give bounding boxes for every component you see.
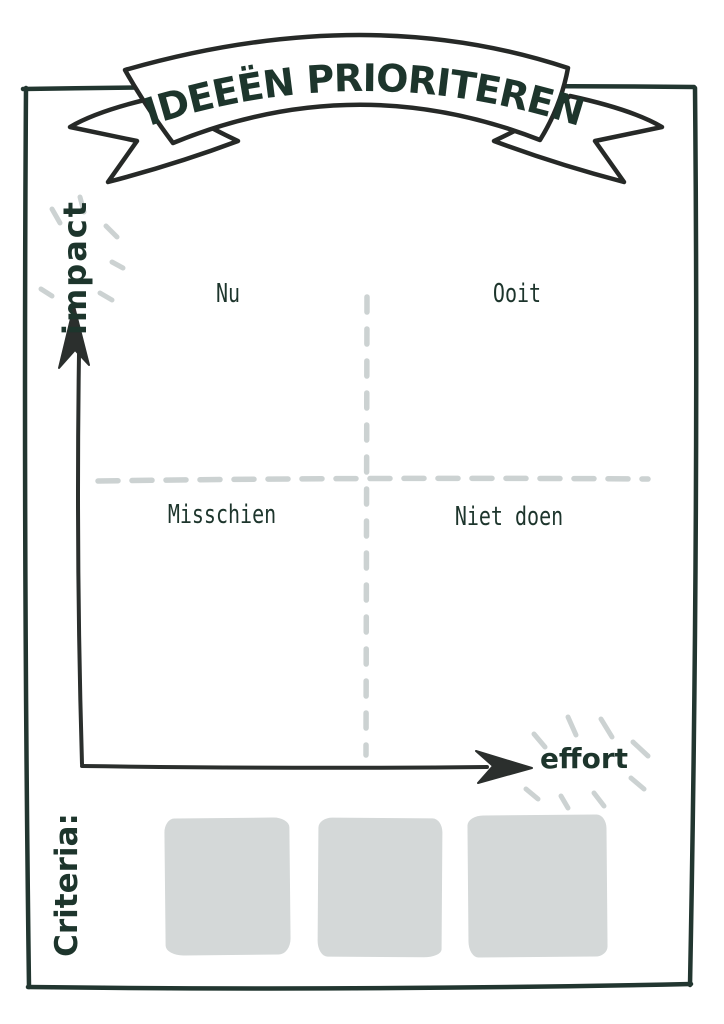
quadrant-divider-horizontal xyxy=(98,478,648,481)
axes xyxy=(78,354,487,768)
effort-axis-line xyxy=(82,766,487,768)
criteria-card-2[interactable] xyxy=(318,818,443,958)
quadrant-label-nu: Nu xyxy=(196,279,260,308)
y-axis-label-impact: impact xyxy=(58,202,93,335)
criteria-card-1[interactable] xyxy=(164,817,290,955)
impact-axis-line xyxy=(78,354,82,764)
quadrant-label-niet-doen: Niet doen xyxy=(452,502,566,531)
criteria-label: Criteria: xyxy=(50,803,84,967)
quadrant-divider-vertical xyxy=(366,297,367,755)
worksheet-page: IDEEËN PRIORITEREN Nu Ooit Misschien Nie… xyxy=(0,0,724,1024)
criteria-card-3[interactable] xyxy=(467,814,607,957)
x-axis-label-effort: effort xyxy=(538,744,630,775)
quadrant-label-ooit: Ooit xyxy=(484,279,550,308)
quadrant-label-misschien: Misschien xyxy=(166,500,278,529)
